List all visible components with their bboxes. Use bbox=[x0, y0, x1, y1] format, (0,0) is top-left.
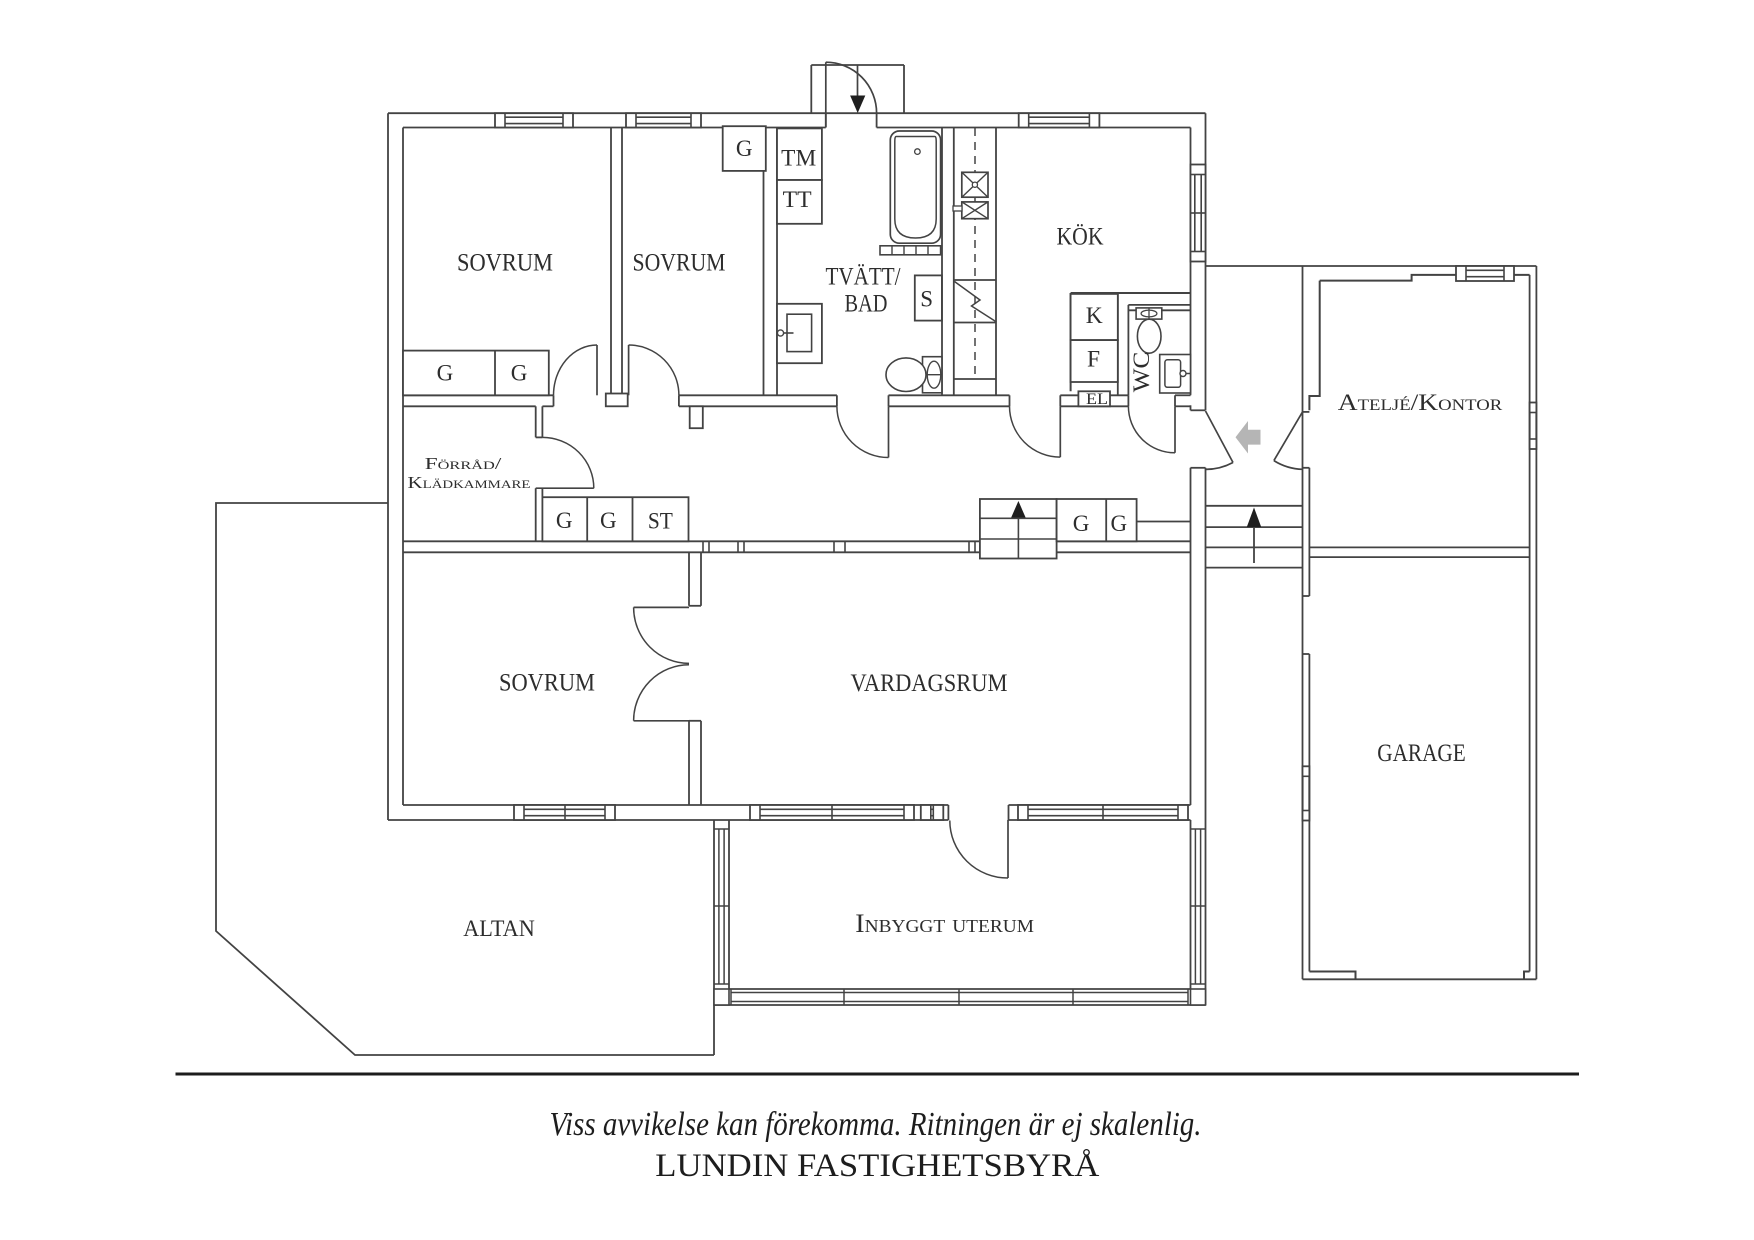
svg-text:TT: TT bbox=[783, 187, 812, 212]
svg-text:WC: WC bbox=[1129, 352, 1155, 393]
svg-text:SOVRUM: SOVRUM bbox=[499, 670, 595, 697]
svg-text:G: G bbox=[437, 361, 454, 386]
svg-text:TVÄTT/: TVÄTT/ bbox=[826, 264, 901, 291]
svg-text:SOVRUM: SOVRUM bbox=[633, 250, 726, 277]
svg-text:KÖK: KÖK bbox=[1057, 224, 1104, 251]
svg-text:GARAGE: GARAGE bbox=[1377, 740, 1466, 767]
svg-text:G: G bbox=[1073, 511, 1090, 536]
svg-text:S: S bbox=[920, 286, 933, 311]
svg-text:G: G bbox=[600, 508, 617, 533]
svg-text:K: K bbox=[1086, 303, 1103, 329]
svg-text:EL: EL bbox=[1086, 391, 1108, 408]
svg-text:SOVRUM: SOVRUM bbox=[457, 250, 553, 277]
svg-text:G: G bbox=[736, 136, 753, 161]
svg-text:VARDAGSRUM: VARDAGSRUM bbox=[851, 670, 1008, 697]
svg-text:ALTAN: ALTAN bbox=[463, 916, 535, 941]
svg-text:ST: ST bbox=[648, 509, 673, 534]
svg-text:Klädkammare: Klädkammare bbox=[408, 473, 531, 492]
svg-text:Inbyggt uterum: Inbyggt uterum bbox=[855, 909, 1034, 938]
svg-text:G: G bbox=[511, 361, 528, 386]
svg-text:BAD: BAD bbox=[845, 291, 888, 318]
svg-text:LUNDIN FASTIGHETSBYRÅ: LUNDIN FASTIGHETSBYRÅ bbox=[655, 1147, 1099, 1184]
svg-text:G: G bbox=[556, 508, 573, 533]
svg-text:Ateljé/Kontor: Ateljé/Kontor bbox=[1338, 390, 1503, 416]
svg-text:TM: TM bbox=[781, 146, 816, 171]
svg-text:Förråd/: Förråd/ bbox=[425, 454, 502, 473]
svg-text:Viss avvikelse kan förekomma.: Viss avvikelse kan förekomma. Ritningen … bbox=[550, 1106, 1202, 1143]
svg-text:G: G bbox=[1110, 511, 1127, 536]
svg-text:F: F bbox=[1087, 346, 1100, 372]
